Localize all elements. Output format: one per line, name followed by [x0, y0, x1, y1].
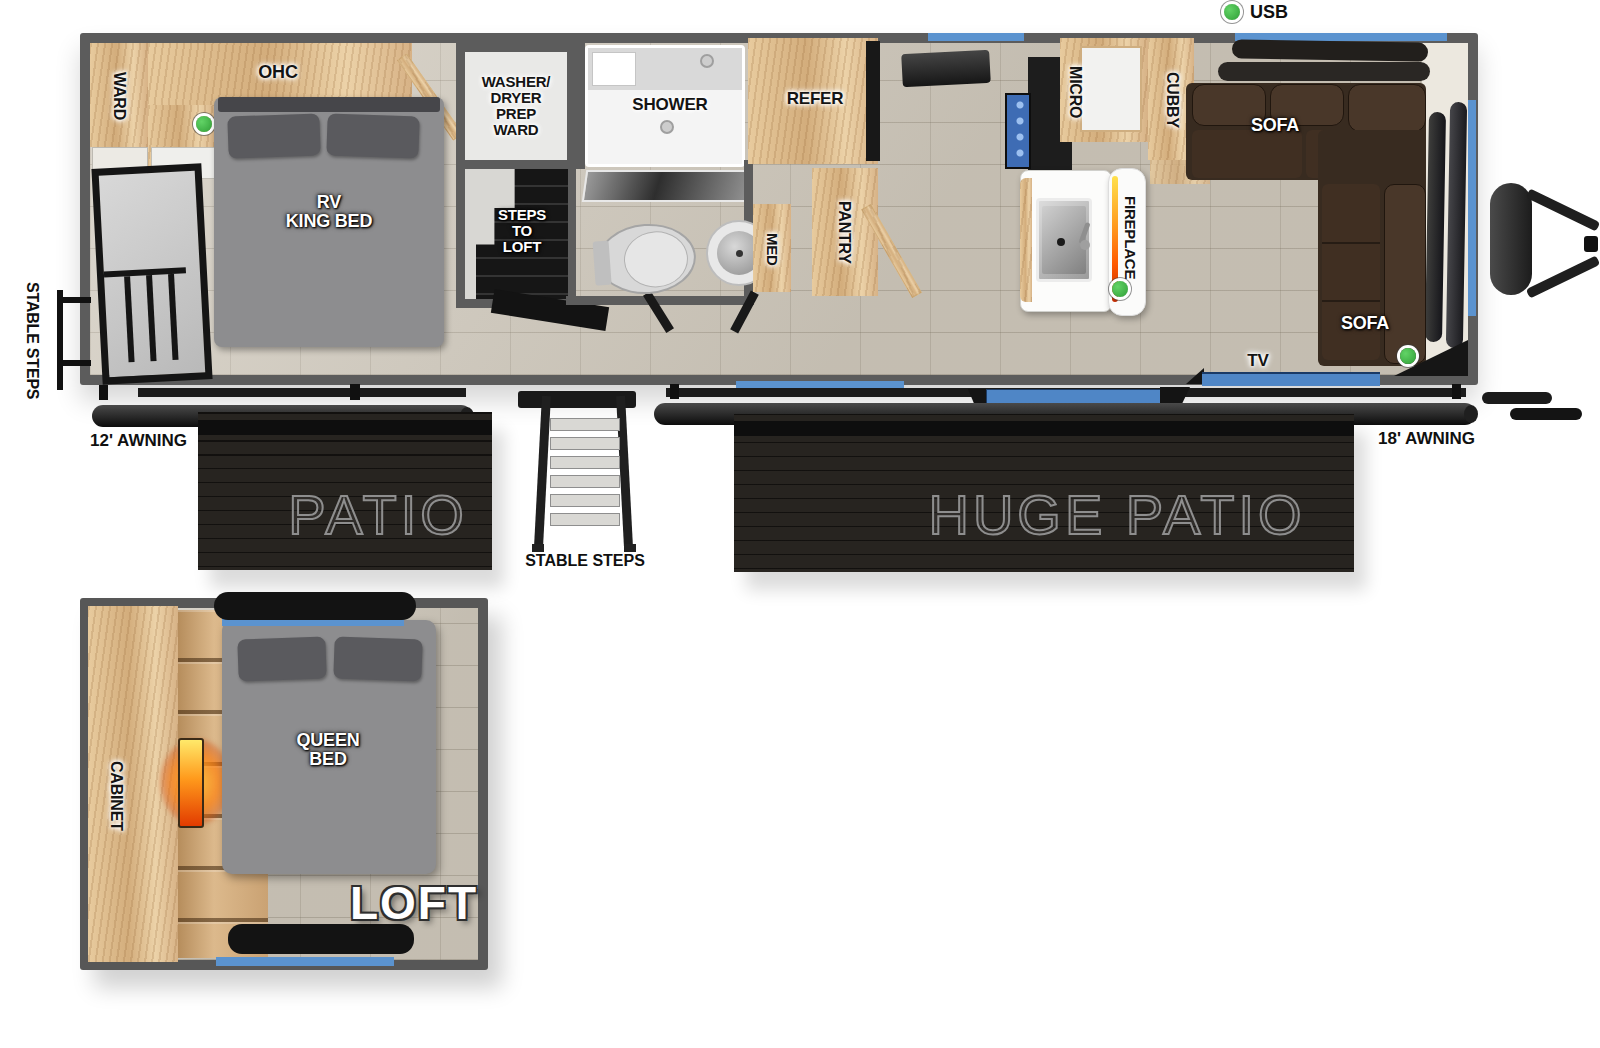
bed-pillow-left: [227, 113, 320, 158]
queen-pillow-right: [333, 636, 422, 681]
hitch-coupler: [1584, 236, 1598, 252]
loft-window-bottom: [216, 957, 394, 966]
stable-steps-center-label: STABLE STEPS: [500, 550, 670, 572]
usb-legend-label: USB: [1250, 0, 1288, 24]
sofa-v-seam-1: [1322, 242, 1380, 244]
window-top-kitchen: [928, 33, 1024, 41]
hitch-frame-bottom: [1526, 255, 1600, 298]
ladder-rail-left: [534, 396, 551, 546]
usb-dot-fireplace: [1112, 281, 1128, 297]
shower-seat: [592, 52, 636, 86]
washer-dryer-label: WASHER/ DRYER PREP WARD: [468, 55, 564, 157]
shower-label: SHOWER: [600, 92, 740, 118]
loft-title: LOFT: [348, 876, 480, 930]
usb-dot-sofa: [1400, 348, 1416, 364]
stabilizer-leg-1: [1482, 392, 1552, 404]
left-steps-rail: [57, 290, 63, 390]
toilet: [596, 221, 699, 300]
med-label: MED: [760, 212, 784, 286]
stable-steps-left-label: STABLE STEPS: [20, 276, 44, 406]
door-bar-2: [146, 275, 156, 361]
patio-beam: [198, 420, 492, 435]
sofa-top-label: SOFA: [1230, 114, 1320, 138]
bath-wall-bottom: [566, 296, 754, 305]
awning-bar-18-cap: [1464, 405, 1478, 423]
ladder-step-3: [550, 456, 620, 469]
shower-head-fitting: [700, 54, 714, 68]
bath-wall-left: [576, 43, 585, 169]
toilet-tank: [593, 241, 612, 286]
awning-18-label: 18' AWNING: [1378, 428, 1475, 450]
ladder-step-5: [550, 494, 620, 507]
bath-sink-drain: [736, 250, 743, 257]
ward-label: WARD: [100, 52, 138, 140]
queen-bed-label: QUEEN BED: [268, 728, 388, 772]
micro-label: MICRO: [1062, 46, 1088, 138]
usb-dot-bedroom: [196, 116, 212, 132]
huge-patio-label: HUGE PATIO: [892, 478, 1342, 550]
king-bed-label: RV KING BED: [254, 190, 404, 234]
huge-patio-beam: [734, 421, 1354, 436]
rail-post-1: [99, 385, 108, 400]
propane-cover: [1490, 183, 1532, 295]
usb-indicator-icon: [1224, 4, 1240, 20]
cubby-label: CUBBY: [1158, 48, 1186, 152]
loft-fireplace: [178, 738, 204, 828]
sliding-glass-door: [91, 163, 212, 384]
bed-pillow-right: [326, 113, 419, 158]
kitchen-sink-drain: [1057, 238, 1065, 246]
door-bar-1: [124, 276, 134, 362]
faucet-base: [1080, 240, 1090, 250]
rail-post-3: [670, 384, 679, 399]
ohc-label: OHC: [218, 55, 338, 91]
patio-label: PATIO: [272, 478, 484, 550]
awning-12-label: 12' AWNING: [90, 430, 187, 452]
patio-railing-left: [138, 388, 466, 397]
rail-post-4: [1452, 384, 1461, 399]
queen-pillow-left: [237, 636, 326, 681]
pantry-label: PANTRY: [826, 182, 862, 282]
fireplace-label: FIREPLACE: [1119, 178, 1141, 298]
tv-label: TV: [1234, 350, 1282, 372]
rv-floorplan: USB WARD OHC RV KING BED STABLE STEPS WA…: [0, 0, 1600, 1048]
ladder-step-4: [550, 475, 620, 488]
sofa-v-seam-2: [1322, 300, 1380, 302]
door-bar-3: [168, 274, 178, 360]
bed-headboard: [218, 97, 440, 112]
sofa-side-label: SOFA: [1320, 312, 1410, 336]
cabinet-label: CABINET: [102, 738, 130, 854]
steps-to-loft-label: STEPS TO LOFT: [478, 175, 566, 287]
island-wood-side: [1020, 178, 1032, 302]
rail-post-2: [350, 384, 360, 400]
stabilizer-leg-2: [1510, 408, 1582, 420]
refer-door-edge: [866, 41, 880, 161]
micro-interior: [1080, 46, 1142, 132]
window-front: [1468, 100, 1476, 316]
left-steps-bar-top: [57, 297, 91, 303]
tv-screen: [1202, 372, 1380, 386]
sofa-back-cushion-3: [1348, 84, 1426, 132]
ladder-step-1: [550, 418, 620, 431]
refer-label: REFER: [770, 86, 860, 112]
shower-drain: [660, 120, 674, 134]
range-hood: [901, 50, 991, 88]
left-steps-bar-bottom: [57, 360, 91, 366]
ladder-step-2: [550, 437, 620, 450]
cooktop: [1005, 93, 1031, 169]
ladder-step-6: [550, 513, 620, 526]
overhead-bolster-1: [1232, 39, 1428, 61]
hitch-frame-top: [1526, 188, 1600, 231]
loft-tray-top: [214, 592, 416, 620]
sofa-v-backrest: [1384, 184, 1426, 364]
overhead-bolster-2: [1218, 62, 1430, 81]
shower-glass-door: [582, 170, 750, 202]
